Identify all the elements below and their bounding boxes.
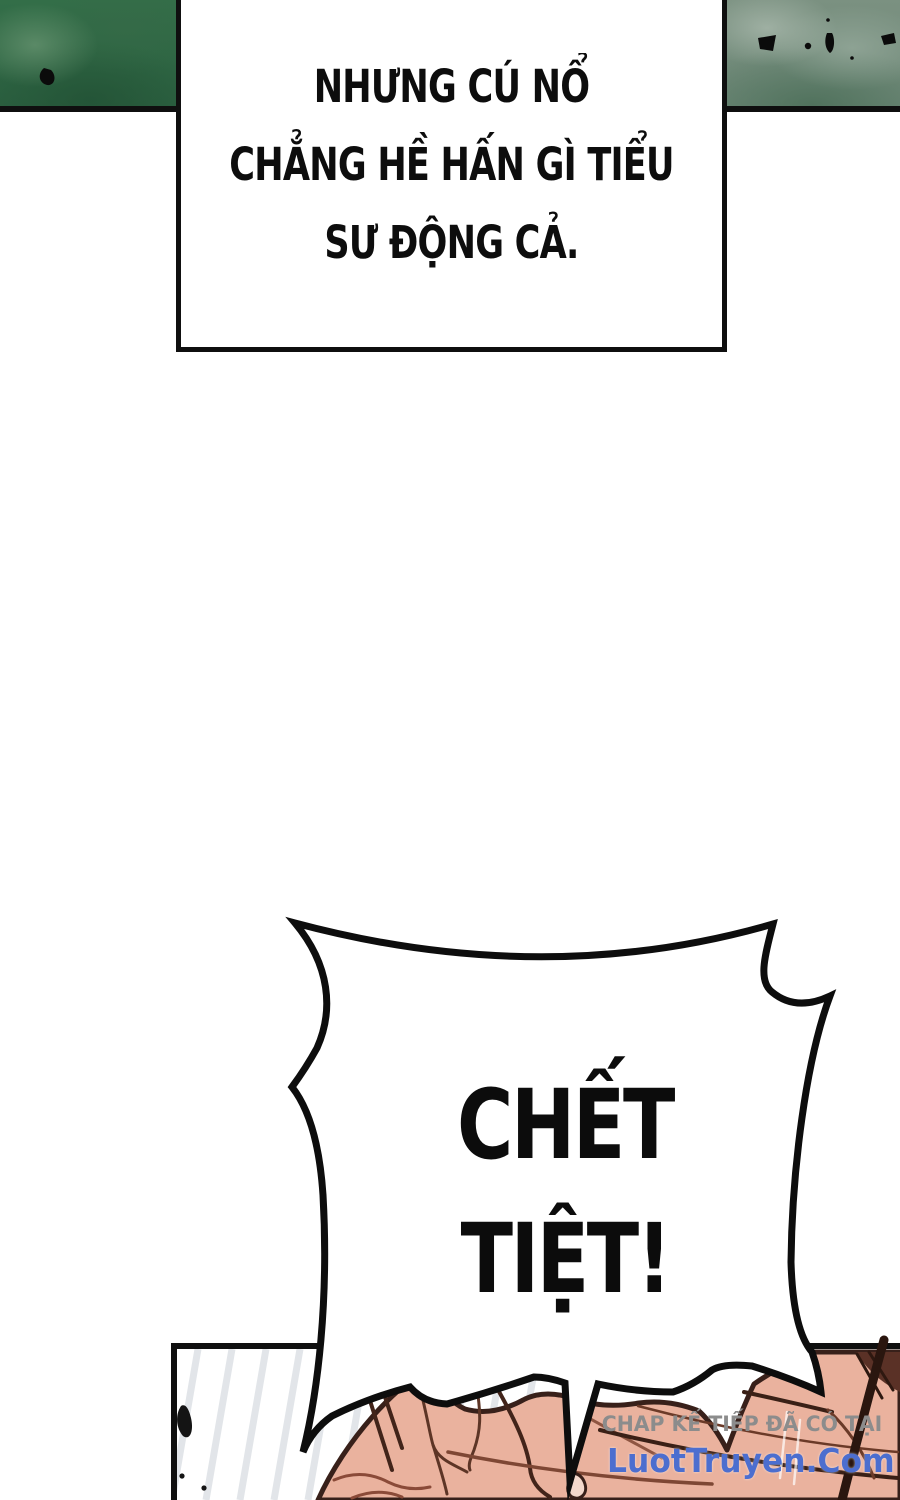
speech-line-1: CHẾT xyxy=(357,1058,773,1192)
speech-bubble-text: CHẾT TIỆT! xyxy=(357,1058,773,1326)
green-panel-debris xyxy=(40,18,896,85)
watermark-tagline: CHAP KẾ TIẾP ĐÃ CÓ TẠI xyxy=(600,1412,883,1436)
watermark-site-name: LuotTruyen.Com xyxy=(607,1441,875,1480)
speech-line-2: TIỆT! xyxy=(357,1192,773,1326)
comic-page: NHƯNG CÚ NỔ CHẲNG HỀ HẤN GÌ TIỂU SƯ ĐỘNG… xyxy=(0,0,900,1500)
